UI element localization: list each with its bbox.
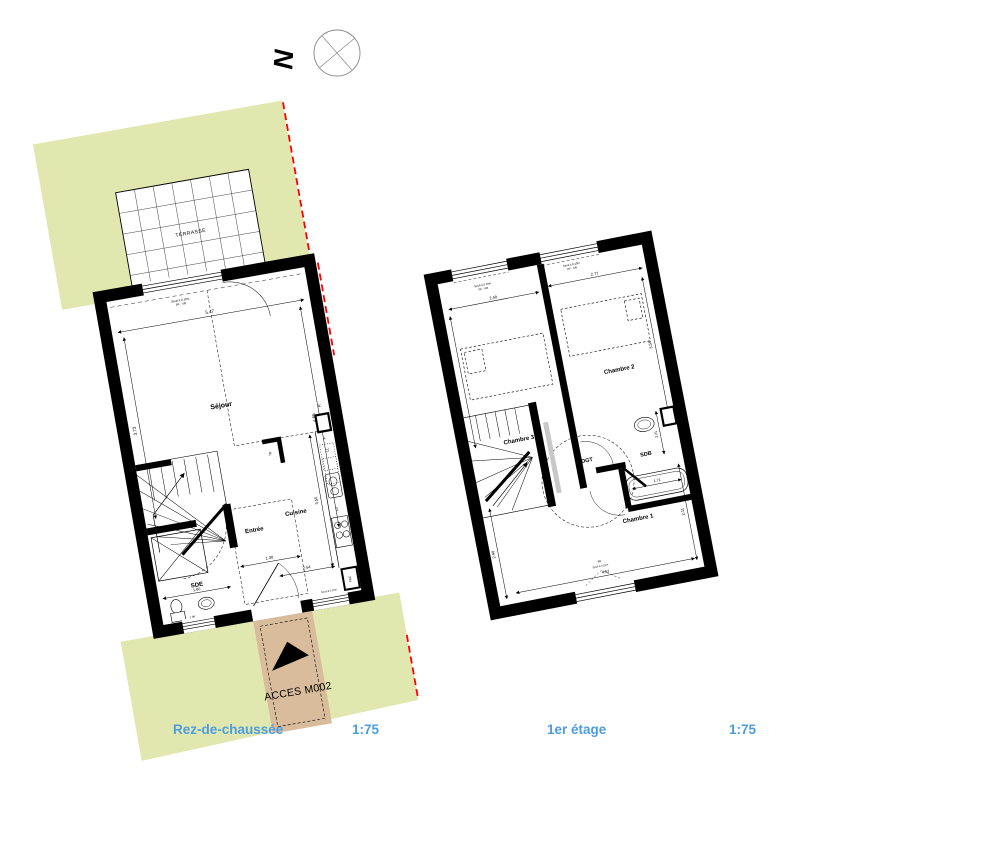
first-floor-plan: Seuil à 0.10m PF : VR 2.40 Seuil à 0.10m… bbox=[393, 205, 768, 675]
caption-ground-floor: Rez-de-chaussée bbox=[173, 722, 283, 737]
ground-floor-plan: TERRASSE Seuil à 0.10m PF : VR 5.47 3.73… bbox=[21, 87, 469, 786]
window1-type-label: PF bbox=[597, 559, 602, 564]
caption-first-floor-scale: 1:75 bbox=[729, 722, 756, 737]
sdb-cabinet bbox=[661, 407, 677, 426]
caption-first-floor: 1er étage bbox=[547, 722, 606, 737]
caption-ground-floor-scale: 1:75 bbox=[352, 722, 379, 737]
north-label: N bbox=[267, 48, 299, 69]
floorplan-sheet: { "colors": { "garden": "#e1e8af", "path… bbox=[0, 0, 1000, 857]
north-compass: N bbox=[265, 25, 375, 85]
appliance-box bbox=[315, 413, 331, 432]
elec-board-label: TB bbox=[268, 452, 273, 457]
